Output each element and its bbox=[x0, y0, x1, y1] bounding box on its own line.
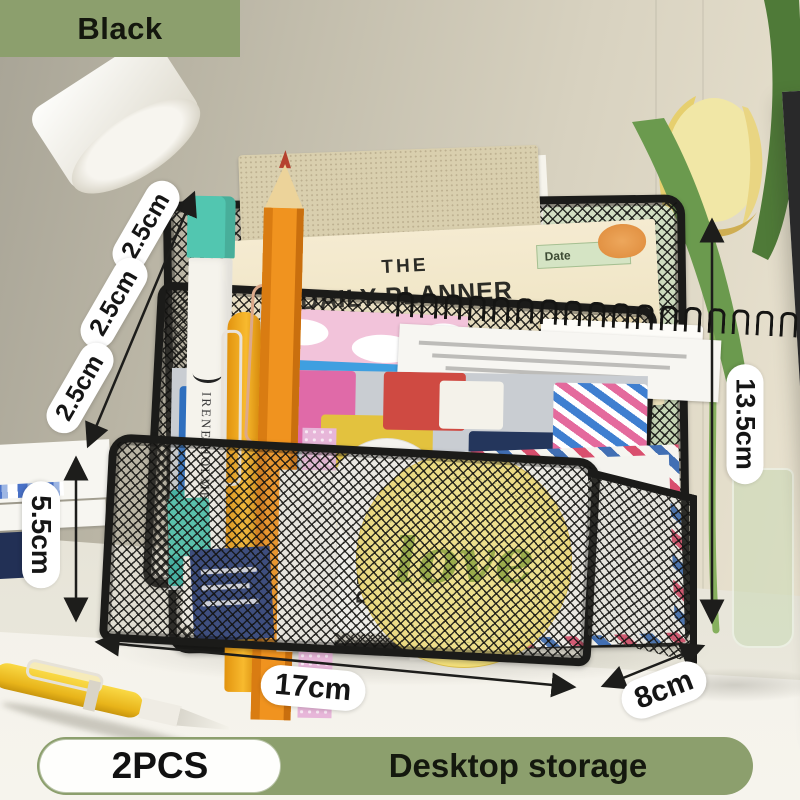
marker-logo-swoosh bbox=[192, 364, 222, 384]
pieces-count-text: 2PCS bbox=[112, 745, 209, 787]
bottom-banner: 2PCS Desktop storage bbox=[37, 737, 753, 795]
pen-nib bbox=[176, 708, 231, 737]
coil bbox=[660, 305, 678, 331]
coil bbox=[732, 309, 750, 335]
glass-vase bbox=[732, 468, 794, 648]
coil bbox=[636, 304, 654, 330]
pencil-wood bbox=[264, 164, 305, 211]
wall-groove bbox=[702, 0, 704, 590]
pen-grip bbox=[138, 697, 182, 726]
coil bbox=[396, 291, 414, 317]
coil bbox=[492, 297, 510, 323]
coil bbox=[540, 299, 558, 325]
planner-the-text: THE bbox=[335, 252, 476, 281]
marker-teal-cap bbox=[187, 196, 236, 259]
coil bbox=[755, 310, 773, 336]
coil bbox=[588, 302, 606, 328]
coil bbox=[708, 308, 726, 334]
product-title-text: Desktop storage bbox=[389, 747, 648, 785]
color-variant-label: Black bbox=[77, 11, 162, 47]
pieces-count-pill: 2PCS bbox=[39, 739, 281, 793]
coil bbox=[444, 294, 462, 320]
coil bbox=[612, 303, 630, 329]
dimension-label-back-height: 13.5cm bbox=[727, 364, 764, 484]
dimension-label-front-height: 5.5cm bbox=[22, 481, 60, 588]
coil bbox=[779, 312, 797, 338]
product-image: THE DAILY PLANNER Date NI IRENE bbox=[0, 0, 800, 800]
product-title-area: Desktop storage bbox=[283, 737, 753, 795]
coil bbox=[684, 307, 702, 333]
coil bbox=[468, 295, 486, 321]
coil bbox=[420, 293, 438, 319]
organizer-front-panel bbox=[99, 433, 601, 666]
mesh-texture bbox=[107, 442, 592, 659]
organizer-side-panel bbox=[588, 468, 697, 663]
color-variant-badge: Black bbox=[0, 0, 240, 57]
mesh-texture bbox=[588, 476, 690, 661]
coil bbox=[516, 298, 534, 324]
sticker-blob bbox=[439, 381, 504, 430]
coil bbox=[564, 300, 582, 326]
